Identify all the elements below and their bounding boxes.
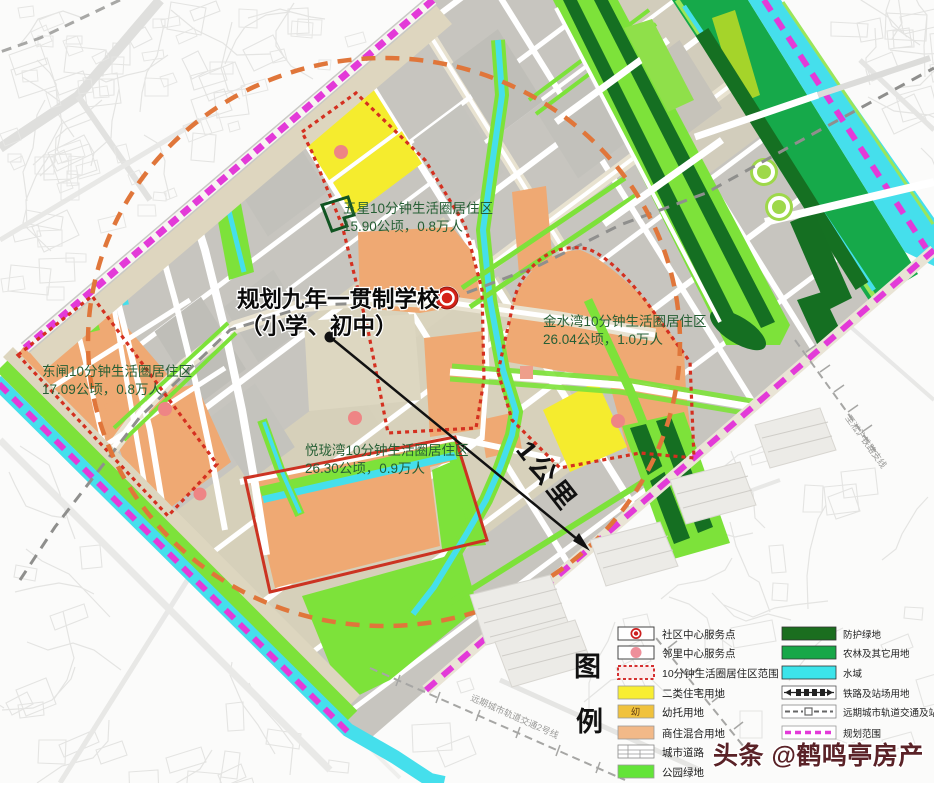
svg-text:图: 图 bbox=[574, 652, 601, 682]
svg-text:幼托用地: 幼托用地 bbox=[662, 706, 704, 719]
svg-text:农林及其它用地: 农林及其它用地 bbox=[843, 648, 910, 660]
svg-text:远期城市轨道交通及站点: 远期城市轨道交通及站点 bbox=[843, 707, 934, 719]
svg-text:例: 例 bbox=[576, 707, 603, 737]
svg-text:规划九年一贯制学校: 规划九年一贯制学校 bbox=[237, 286, 440, 312]
svg-text:城市道路: 城市道路 bbox=[662, 746, 704, 759]
svg-text:（小学、初中）: （小学、初中） bbox=[240, 313, 398, 339]
svg-text:邻里中心服务点: 邻里中心服务点 bbox=[662, 647, 736, 660]
svg-text:金水湾10分钟生活圈居住区: 金水湾10分钟生活圈居住区 bbox=[543, 313, 707, 329]
svg-text:17.09公顷，0.8万人: 17.09公顷，0.8万人 bbox=[42, 382, 163, 397]
svg-text:15.90公顷，0.8万人: 15.90公顷，0.8万人 bbox=[343, 219, 464, 234]
svg-text:规划范围: 规划范围 bbox=[843, 728, 881, 740]
svg-text:社区中心服务点: 社区中心服务点 bbox=[662, 628, 736, 641]
svg-text:商住混合用地: 商住混合用地 bbox=[662, 727, 725, 740]
svg-text:10分钟生活圈居住区范围: 10分钟生活圈居住区范围 bbox=[662, 667, 779, 680]
svg-text:东闸10分钟生活圈居住区: 东闸10分钟生活圈居住区 bbox=[42, 363, 192, 379]
svg-text:二类住宅用地: 二类住宅用地 bbox=[662, 687, 725, 700]
svg-text:五星10分钟生活圈居住区: 五星10分钟生活圈居住区 bbox=[343, 200, 493, 216]
svg-text:水域: 水域 bbox=[843, 668, 863, 680]
svg-text:26.30公顷，0.9万人: 26.30公顷，0.9万人 bbox=[305, 461, 426, 476]
svg-text:公园绿地: 公园绿地 bbox=[662, 766, 704, 779]
svg-text:头条 @鹤鸣亭房产: 头条 @鹤鸣亭房产 bbox=[713, 741, 924, 770]
svg-text:防护绿地: 防护绿地 bbox=[843, 629, 882, 641]
svg-text:㓜: 㓜 bbox=[631, 707, 640, 717]
svg-text:铁路及站场用地: 铁路及站场用地 bbox=[843, 688, 910, 700]
svg-text:26.04公顷，1.0万人: 26.04公顷，1.0万人 bbox=[543, 332, 664, 347]
svg-text:悦珑湾10分钟生活圈居住区: 悦珑湾10分钟生活圈居住区 bbox=[305, 442, 469, 458]
